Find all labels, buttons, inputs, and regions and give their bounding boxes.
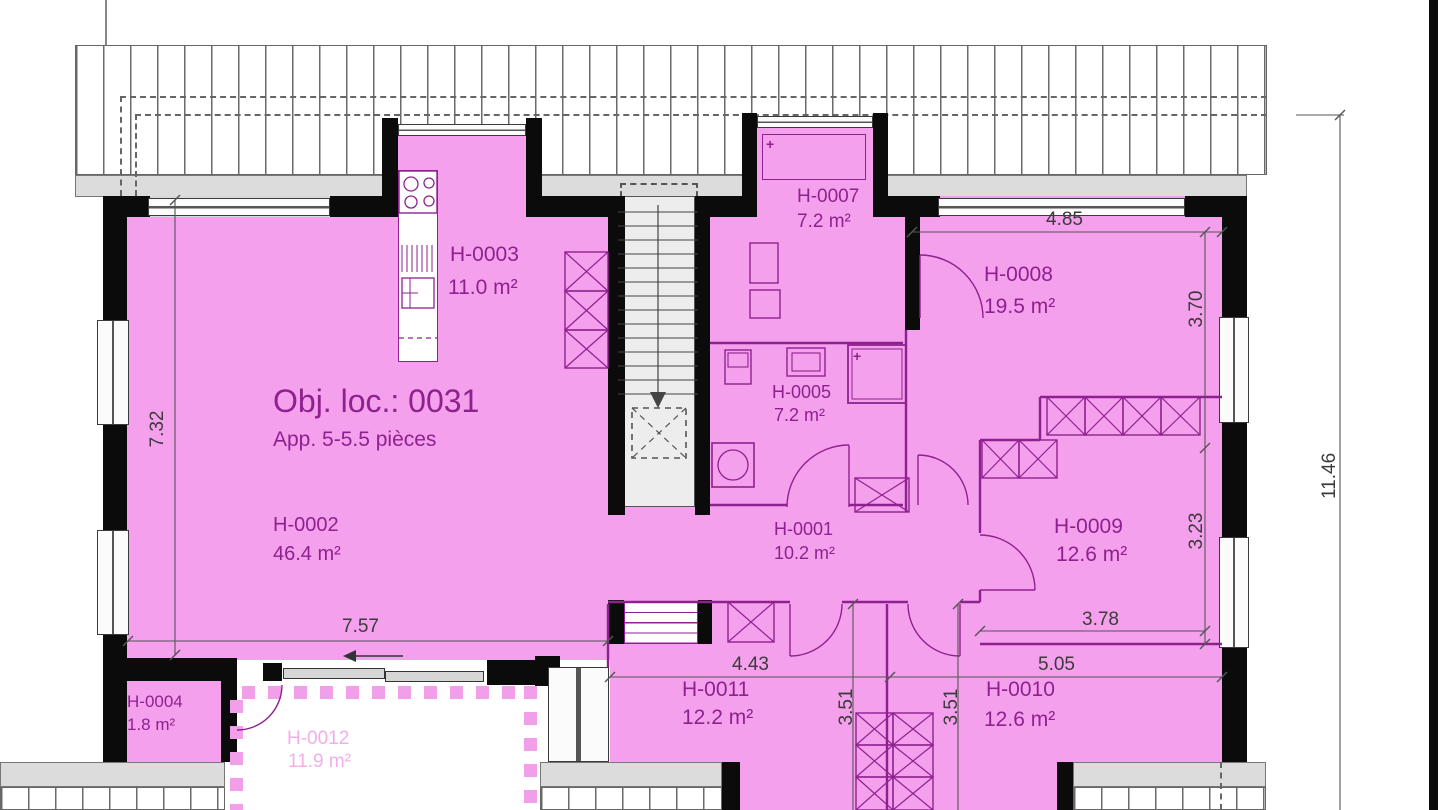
kitchen-counter [398,170,438,362]
room-area-h0007: 7.2 m² [797,211,851,233]
wall [1185,196,1247,217]
bed [762,134,866,180]
stair-wall [608,196,625,515]
dormer-wall [382,118,398,217]
rooms-bottom-fill [740,762,1057,810]
dormer-wall [526,118,542,217]
fixture-plus-mark: + [853,348,861,364]
wall-right [1222,423,1247,537]
dim-h0008-height: 3.70 [1186,287,1204,331]
wall-stub [722,762,740,810]
room-area-h0004: 1.8 m² [127,715,175,735]
floor-plan: Obj. loc.: 0031 App. 5-5.5 pièces H-0003… [0,0,1440,810]
room-label-h0004: H-0004 [127,692,183,712]
roof-gutter-bottom-left [0,762,225,787]
stair-wall [695,196,710,515]
terrace-dashed-border [524,686,537,810]
wall-stub [1057,762,1073,810]
stairwell [618,196,695,507]
room-label-h0011: H-0011 [682,678,749,702]
dim-tick [1335,110,1345,120]
dim-h0002-width: 7.57 [342,616,379,638]
dim-h0010-depth: 3.51 [941,685,959,729]
room-area-h0009: 12.6 m² [1056,543,1127,567]
room-label-h0003: H-0003 [450,243,519,267]
roof-gutter-bottom-mid [540,762,722,787]
sliding-door [385,671,484,682]
roof-dashed-line [135,114,137,196]
room-label-h0002: H-0002 [273,514,339,537]
reference-line [105,0,107,45]
wall-left [103,217,127,320]
wall-bottom [487,660,538,685]
dim-h0009-height: 3.23 [1186,509,1204,553]
dormer-window [757,116,873,128]
door-post [263,663,282,681]
screen-edge [1429,0,1438,810]
window [1219,537,1249,648]
room-area-h0002: 46.4 m² [273,543,341,566]
dim-h0011-width: 4.43 [732,654,769,676]
wall [103,196,150,217]
wall [708,196,742,217]
window [1219,317,1249,423]
wall [542,196,612,217]
room-label-h0008: H-0008 [984,263,1053,287]
room-label-h0007: H-0007 [797,186,859,208]
dim-h0002-height: 7.32 [147,407,165,451]
roof-hatch-bottom-left [0,787,225,810]
dim-h0010-width: 5.05 [1038,654,1075,676]
room-area-h0011: 12.2 m² [682,706,753,730]
roof-dashed-line [120,96,122,196]
window [97,320,129,425]
wall-left [103,425,127,530]
roof-gutter-bottom-right [1073,762,1266,787]
wall-right [1222,648,1247,762]
sliding-door [283,668,385,679]
room-area-h0005: 7.2 m² [774,405,825,426]
object-subtitle: App. 5-5.5 pièces [273,428,436,452]
roof-dashed-line [135,114,1267,116]
terrace-dashed-border [242,686,532,699]
room-label-h0001: H-0001 [774,519,833,540]
wall-left [103,635,127,763]
room-area-h0008: 19.5 m² [984,295,1055,319]
wall-right [1222,217,1247,317]
fixture-plus-mark: + [766,136,774,152]
wall [330,196,382,217]
roof-hatch-top [75,45,1267,175]
room-area-h0001: 10.2 m² [774,543,835,564]
room-label-h0009: H-0009 [1054,515,1123,539]
wall-h0008-left [905,217,920,330]
room-area-h0012: 11.9 m² [288,751,351,773]
terrace-dashed-border [230,700,243,810]
dormer-wall [742,113,757,217]
roof-dashed-line [120,96,1267,98]
room-label-h0010: H-0010 [986,678,1055,702]
room-area-h0003: 11.0 m² [448,276,518,300]
dim-building-height: 11.46 [1319,455,1337,499]
dim-h0011-depth: 3.51 [836,685,854,729]
window [97,530,129,635]
room-label-h0012: H-0012 [287,728,349,750]
dim-h0008-width: 4.85 [1046,209,1083,231]
roof-dashed-line [1220,762,1222,810]
roof-hatch-bottom-mid [540,787,722,810]
wall [888,196,940,217]
object-title: Obj. loc.: 0031 [273,383,479,420]
closet-shelf [624,602,698,644]
dim-h0009-width: 3.78 [1082,609,1119,631]
closet-wall [698,600,712,644]
stair-opening-above [620,183,698,196]
wall-h0004-top [103,658,237,681]
roof-hatch-bottom-right [1073,787,1266,810]
dormer-window [398,124,526,136]
window [148,198,330,216]
closet-wall [608,600,624,644]
terrace-window [548,667,609,762]
room-area-h0010: 12.6 m² [984,708,1055,732]
room-label-h0005: H-0005 [772,382,831,403]
dormer-wall [873,113,888,217]
